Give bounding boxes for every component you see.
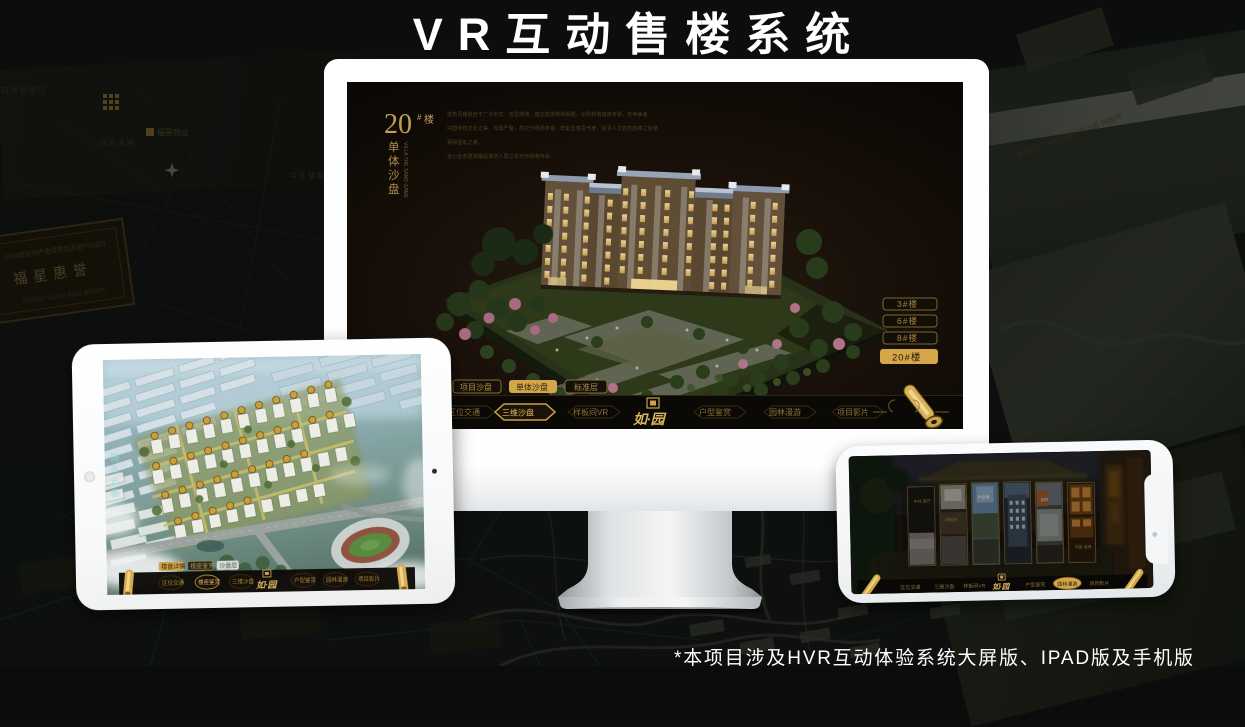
svg-text:楼: 楼 xyxy=(424,113,434,126)
svg-text:三维沙盘: 三维沙盘 xyxy=(934,583,954,590)
svg-text:图: 图 xyxy=(111,489,119,498)
svg-text:项目简介 区位交通 三维沙盘 样板间: 项目简介 区位交通 三维沙盘 样板间 xyxy=(1016,112,1123,160)
svg-text:项目影片: 项目影片 xyxy=(837,407,869,417)
svg-text:中 区 楼 層: 中 区 楼 層 xyxy=(290,171,324,180)
svg-text:体: 体 xyxy=(388,154,400,168)
svg-text:云: 云 xyxy=(111,477,119,486)
svg-text:如·园: 如·园 xyxy=(256,580,278,590)
svg-text:20: 20 xyxy=(384,109,412,140)
svg-text:样板间VR: 样板间VR xyxy=(573,407,608,417)
svg-text:8#楼: 8#楼 xyxy=(897,333,918,343)
svg-text:区位交通: 区位交通 xyxy=(448,407,480,417)
svg-text:项目影片: 项目影片 xyxy=(1089,580,1109,587)
svg-text:#: # xyxy=(417,113,422,122)
svg-text:6#楼: 6#楼 xyxy=(897,316,918,326)
svg-text:相得益彰之美。: 相得益彰之美。 xyxy=(447,139,483,146)
svg-text:如·园: 如·园 xyxy=(633,411,667,428)
svg-text:盘: 盘 xyxy=(388,182,400,196)
svg-text:中国传统文化之美、布局严整，层次分明而丰富，既彰显尊贵气度，: 中国传统文化之美、布局严整，层次分明而丰富，既彰显尊贵气度，追求人文自然韵味之和… xyxy=(447,125,658,132)
svg-text:沙: 沙 xyxy=(388,169,400,182)
svg-text:VILLA THE SAND GAME: VILLA THE SAND GAME xyxy=(402,142,408,199)
svg-text:单: 单 xyxy=(388,141,400,154)
svg-text:口 田 窗 田 口: 口 田 窗 田 口 xyxy=(2,85,45,94)
svg-text:福星物业: 福星物业 xyxy=(157,127,189,137)
svg-text:四 柱 支 座: 四 柱 支 座 xyxy=(100,138,134,147)
svg-text:区: 区 xyxy=(111,465,119,474)
svg-text:3#楼: 3#楼 xyxy=(897,299,918,309)
svg-text:项目沙盘: 项目沙盘 xyxy=(460,382,492,392)
svg-text:三维沙盘: 三维沙盘 xyxy=(502,408,534,418)
svg-text:如·园: 如·园 xyxy=(992,582,1011,591)
svg-text:单体沙盘: 单体沙盘 xyxy=(516,382,548,392)
svg-text:全心全意建筑臻品典范人居之本杰作经典传承。: 全心全意建筑臻品典范人居之本杰作经典传承。 xyxy=(447,153,555,160)
svg-text:样板间VR: 样板间VR xyxy=(963,582,985,589)
svg-text:标准层: 标准层 xyxy=(574,382,598,392)
svg-text:户型鉴赏: 户型鉴赏 xyxy=(1025,581,1045,588)
svg-text:园林漫游: 园林漫游 xyxy=(769,407,801,417)
svg-text:20#楼: 20#楼 xyxy=(892,352,921,364)
svg-text:户型鉴赏: 户型鉴赏 xyxy=(699,407,731,417)
svg-text:园: 园 xyxy=(111,453,119,462)
svg-text:区位交通: 区位交通 xyxy=(900,584,920,591)
svg-text:园林漫游: 园林漫游 xyxy=(1057,581,1077,588)
svg-text:建筑风格取自于广泛中式：造型典雅，端庄稳重精致细腻，比例和谐: 建筑风格取自于广泛中式：造型典雅，端庄稳重精致细腻，比例和谐错落有致，形神兼备 xyxy=(447,111,648,118)
